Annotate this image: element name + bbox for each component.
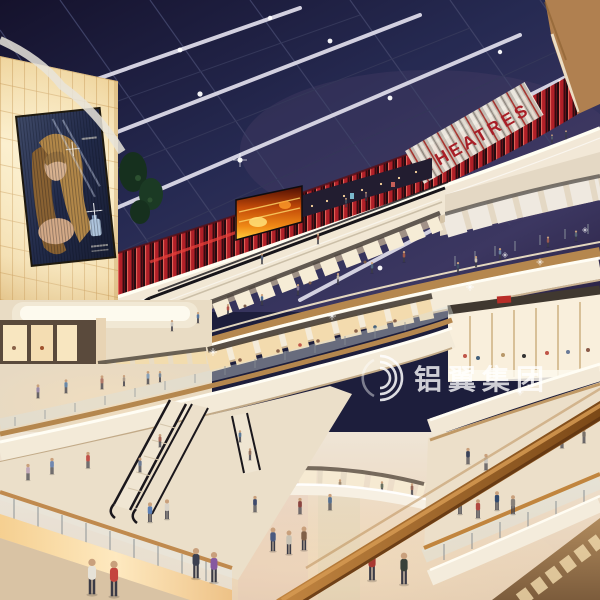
perfume-billboard [16,108,115,266]
watermark-text: 铝翼集团 [414,363,550,396]
watermark-logo-icon [363,356,402,400]
mall-rendering-canvas: THEATRES [0,0,600,600]
mall-atrium-rendering: THEATRES [0,0,600,600]
